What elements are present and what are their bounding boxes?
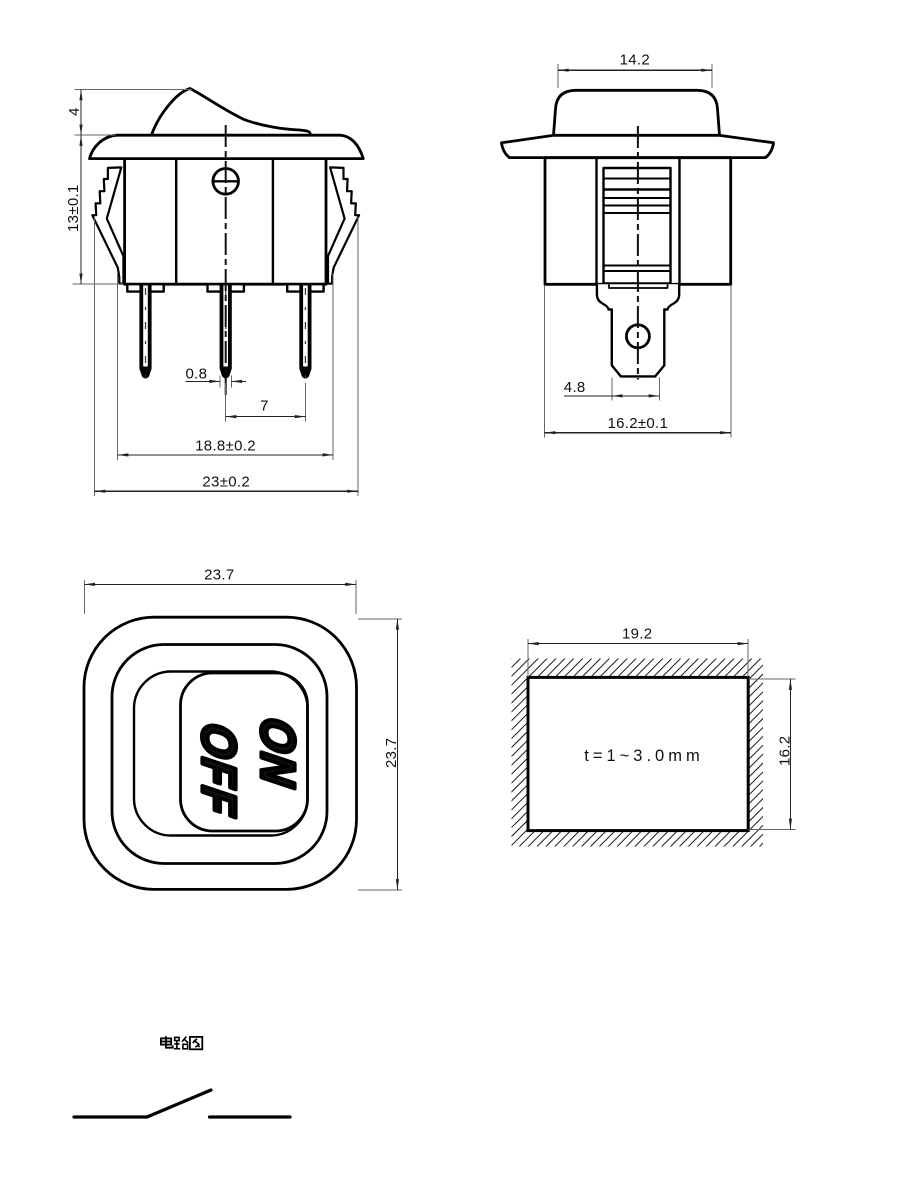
svg-text:7: 7 [260,398,269,415]
svg-text:ON: ON [251,714,305,791]
svg-text:23.7: 23.7 [383,738,400,768]
svg-text:23.7: 23.7 [204,567,234,584]
svg-text:16.2±0.1: 16.2±0.1 [607,415,668,432]
svg-text:23±0.2: 23±0.2 [202,474,250,491]
svg-text:t=1~3.0mm: t=1~3.0mm [584,747,703,765]
svg-text:14.2: 14.2 [620,52,650,69]
svg-text:13±0.1: 13±0.1 [65,184,82,232]
svg-text:OFF: OFF [192,720,246,820]
svg-text:0.8: 0.8 [186,366,208,383]
svg-text:4.8: 4.8 [564,379,586,396]
svg-text:19.2: 19.2 [622,626,652,643]
svg-text:18.8±0.2: 18.8±0.2 [195,438,256,455]
svg-text:16.2: 16.2 [776,736,793,766]
svg-text:4: 4 [66,107,83,116]
